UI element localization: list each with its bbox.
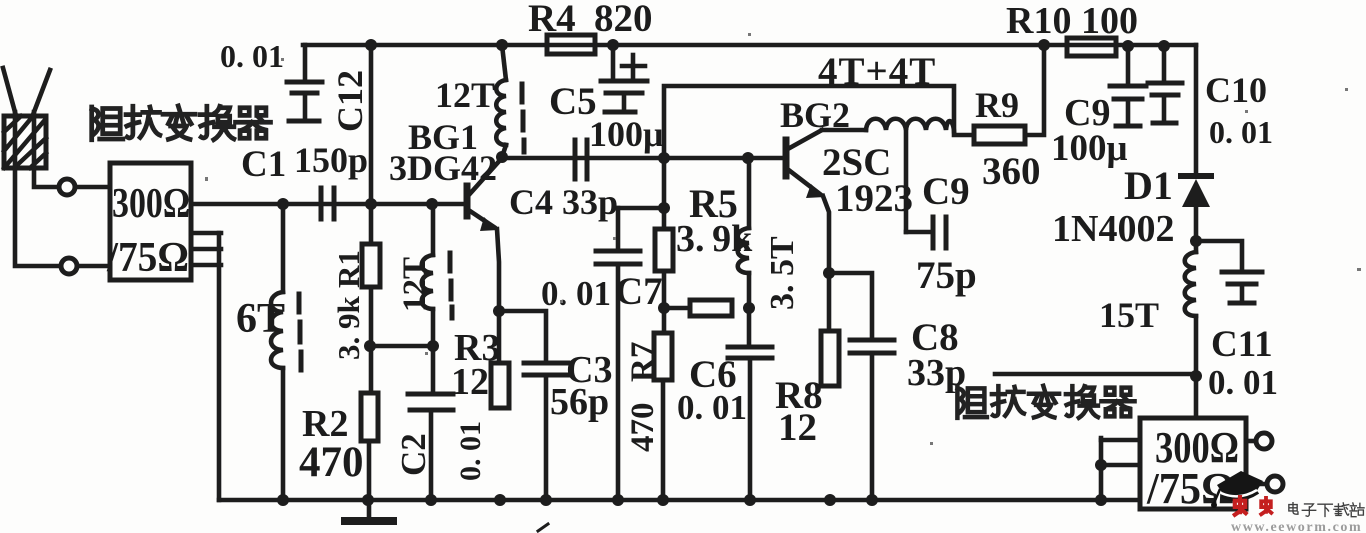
- svg-text:12: 12: [778, 406, 817, 449]
- svg-text:470: 470: [625, 403, 661, 453]
- svg-text:/75Ω: /75Ω: [106, 235, 189, 281]
- svg-text:6T: 6T: [236, 296, 285, 342]
- svg-text:C7: C7: [615, 270, 663, 313]
- svg-text:100μ: 100μ: [1051, 128, 1128, 169]
- svg-text:C9: C9: [922, 170, 970, 213]
- svg-text:R7: R7: [625, 342, 661, 382]
- svg-text:0. 01: 0. 01: [220, 38, 284, 74]
- svg-text:R9: R9: [975, 85, 1019, 125]
- svg-text:56p: 56p: [550, 381, 609, 423]
- svg-text:R10 100: R10 100: [1006, 0, 1138, 42]
- svg-text:3. 5T: 3. 5T: [764, 236, 801, 310]
- svg-text:D1: D1: [1124, 163, 1173, 208]
- svg-text:1N4002: 1N4002: [1052, 208, 1174, 250]
- svg-text:BG2: BG2: [780, 95, 850, 135]
- svg-text:470: 470: [299, 439, 364, 486]
- svg-text:C10: C10: [1205, 70, 1267, 110]
- svg-text:www.eeworm.com: www.eeworm.com: [1231, 520, 1362, 533]
- svg-text:C1: C1: [241, 144, 286, 185]
- svg-text:1923: 1923: [835, 177, 913, 220]
- svg-text:12T: 12T: [435, 75, 495, 115]
- svg-text:C4 33p: C4 33p: [509, 182, 618, 222]
- svg-text:100μ: 100μ: [589, 114, 663, 154]
- svg-text:C11: C11: [1211, 324, 1273, 365]
- svg-text:150p: 150p: [294, 140, 368, 180]
- svg-text:12T: 12T: [397, 257, 433, 312]
- svg-text:3DG42: 3DG42: [389, 148, 497, 188]
- svg-text:4T+4T: 4T+4T: [818, 50, 936, 93]
- svg-text:360: 360: [982, 150, 1041, 193]
- svg-text:0. 01: 0. 01: [1209, 114, 1273, 150]
- svg-text:3. 9k: 3. 9k: [331, 296, 366, 361]
- svg-text:0. 01: 0. 01: [454, 421, 487, 481]
- svg-text:75p: 75p: [916, 254, 977, 297]
- svg-text:0. 01: 0. 01: [1208, 363, 1278, 402]
- svg-text:3. 9k: 3. 9k: [676, 218, 753, 260]
- svg-text:C12: C12: [330, 70, 370, 132]
- svg-text:0. 01: 0. 01: [677, 388, 747, 427]
- svg-text:300Ω: 300Ω: [112, 181, 190, 227]
- svg-text:R4: R4: [528, 0, 576, 40]
- svg-text:C2: C2: [394, 433, 433, 476]
- svg-text:0. 01: 0. 01: [541, 274, 611, 313]
- svg-text:15T: 15T: [1099, 295, 1159, 335]
- svg-text:820: 820: [594, 0, 653, 40]
- svg-text:R1: R1: [331, 250, 366, 288]
- svg-text:12: 12: [451, 361, 489, 403]
